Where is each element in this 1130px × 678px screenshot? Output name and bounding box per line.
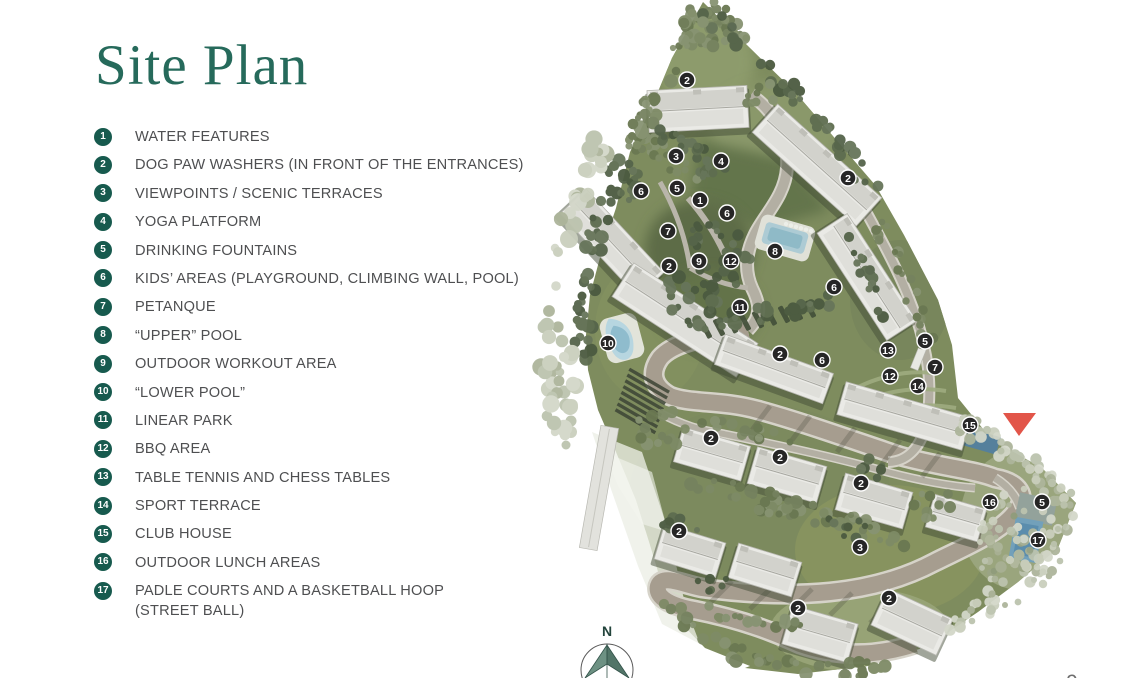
svg-text:6: 6 [819,355,825,367]
svg-text:11: 11 [734,302,745,314]
svg-text:12: 12 [725,256,737,268]
svg-text:14: 14 [912,381,924,393]
svg-text:2: 2 [777,349,783,361]
svg-text:15: 15 [964,420,976,432]
svg-text:6: 6 [831,282,837,294]
svg-text:9: 9 [1066,671,1078,678]
svg-text:10: 10 [602,338,614,350]
svg-text:16: 16 [984,497,996,509]
svg-text:2: 2 [777,452,783,464]
svg-text:N: N [602,623,612,639]
svg-text:4: 4 [718,156,724,168]
svg-text:5: 5 [1039,497,1045,509]
svg-text:2: 2 [886,593,892,605]
svg-text:7: 7 [665,226,671,238]
svg-text:2: 2 [708,433,714,445]
svg-text:5: 5 [674,183,680,195]
svg-text:2: 2 [845,173,851,185]
svg-text:12: 12 [884,371,896,383]
svg-text:7: 7 [932,362,938,374]
svg-text:8: 8 [772,246,778,258]
svg-text:6: 6 [724,208,730,220]
svg-text:2: 2 [795,603,801,615]
svg-text:2: 2 [684,75,690,87]
svg-text:2: 2 [666,261,672,273]
svg-text:2: 2 [858,478,864,490]
svg-text:6: 6 [638,186,644,198]
svg-text:3: 3 [673,151,679,163]
svg-text:2: 2 [676,526,682,538]
svg-text:1: 1 [697,195,703,207]
svg-text:3: 3 [857,542,863,554]
svg-text:9: 9 [696,256,702,268]
svg-text:13: 13 [882,345,894,357]
svg-text:17: 17 [1032,535,1044,547]
svg-text:5: 5 [922,336,928,348]
